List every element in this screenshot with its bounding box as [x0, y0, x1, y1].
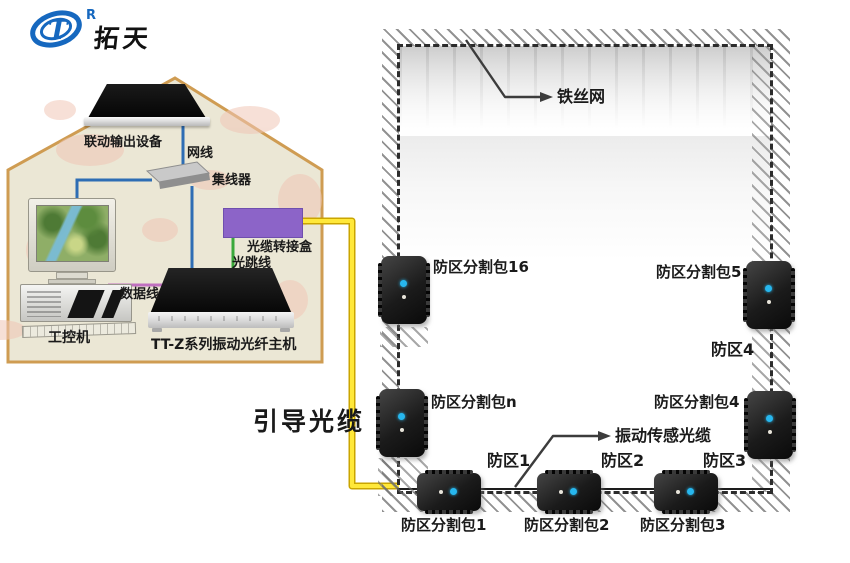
- led-indicator: [398, 413, 405, 420]
- vibration-fiber-host-base: [148, 312, 294, 328]
- status-dot: [400, 428, 404, 432]
- pc-vents: [27, 291, 61, 317]
- registered-trademark: R: [86, 8, 96, 23]
- vibration-fiber-host: [150, 268, 292, 314]
- industrial-pc-label: 工控机: [48, 331, 90, 346]
- status-dot: [768, 430, 772, 434]
- network-cable-label: 网线: [187, 147, 213, 161]
- monitor: [28, 198, 116, 272]
- zone-1-label: 防区1: [487, 452, 530, 470]
- diagram-canvas: 防区分割包16 防区分割包n 防区分割包5 防区分割包4 防区分割包1 防区分割…: [0, 0, 850, 563]
- zone-pack-n: [379, 389, 425, 457]
- map-screen: [36, 205, 109, 262]
- guide-cable-label: 引导光缆: [253, 408, 365, 436]
- host-label: TT-Z系列振动光纤主机: [151, 338, 296, 353]
- zone-pack-1-label: 防区分割包1: [401, 517, 486, 534]
- led-indicator: [450, 488, 457, 495]
- status-dot: [676, 490, 680, 494]
- data-cable-label: 数据线: [120, 288, 159, 302]
- led-indicator: [687, 488, 694, 495]
- zone-pack-3: [654, 473, 718, 511]
- zone-pack-16-label: 防区分割包16: [433, 259, 529, 276]
- junction-box-label: 光缆转接盒: [247, 241, 312, 255]
- status-dot: [402, 295, 406, 299]
- hub-label: 集线器: [212, 174, 251, 188]
- zone-pack-16: [381, 256, 427, 324]
- mesh-label: 铁丝网: [557, 88, 605, 106]
- zone-pack-2-label: 防区分割包2: [524, 517, 609, 534]
- zone-pack-5-label: 防区分割包5: [656, 264, 741, 281]
- zone-2-label: 防区2: [601, 452, 644, 470]
- pack16-shadow: [380, 327, 428, 347]
- zone-pack-2: [537, 473, 601, 511]
- device-foot: [152, 328, 162, 332]
- led-indicator: [570, 488, 577, 495]
- device-foot: [280, 328, 290, 332]
- linkage-output-label: 联动输出设备: [84, 136, 162, 150]
- status-dot: [439, 490, 443, 494]
- led-indicator: [766, 415, 773, 422]
- zone-pack-4: [747, 391, 793, 459]
- zone-pack-n-label: 防区分割包n: [431, 394, 517, 411]
- brand-name: 拓天: [92, 19, 154, 55]
- zone-4-label: 防区4: [711, 341, 754, 359]
- zone-pack-1: [417, 473, 481, 511]
- status-dot: [767, 300, 771, 304]
- fiber-junction-box: [223, 208, 303, 238]
- led-indicator: [400, 280, 407, 287]
- pc-case: [20, 284, 132, 322]
- led-indicator: [765, 285, 772, 292]
- monitor-neck: [56, 272, 88, 279]
- linkage-output-device-base: [84, 117, 210, 126]
- status-dot: [559, 490, 563, 494]
- svg-text:T: T: [48, 16, 69, 46]
- sensor-cable-label: 振动传感光缆: [615, 427, 711, 445]
- pc-drive-bay: [67, 290, 104, 318]
- zone-pack-5: [746, 261, 792, 329]
- zone-pack-3-label: 防区分割包3: [640, 517, 725, 534]
- zone-3-label: 防区3: [703, 452, 746, 470]
- zone-pack-4-label: 防区分割包4: [654, 394, 739, 411]
